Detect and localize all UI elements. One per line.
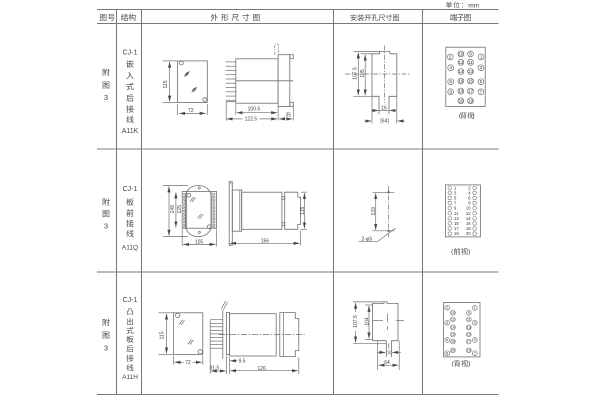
- svg-text:4: 4: [446, 321, 448, 325]
- svg-text:156: 156: [261, 238, 270, 244]
- svg-text:3: 3: [474, 321, 476, 325]
- svg-text:12: 12: [451, 318, 455, 322]
- svg-text:17: 17: [468, 89, 474, 94]
- svg-text:133: 133: [371, 207, 377, 216]
- svg-text:19: 19: [454, 231, 459, 236]
- svg-text:2: 2: [446, 306, 448, 310]
- svg-text:20: 20: [451, 349, 455, 353]
- svg-text:11: 11: [468, 60, 473, 65]
- svg-text:18: 18: [451, 340, 455, 344]
- svg-text:105: 105: [360, 69, 366, 78]
- svg-text:9: 9: [468, 311, 470, 315]
- svg-text:2-φ5: 2-φ5: [361, 236, 372, 242]
- svg-text:13: 13: [467, 326, 471, 330]
- svg-text:16: 16: [381, 105, 387, 111]
- svg-text:15: 15: [467, 333, 471, 337]
- svg-text:72: 72: [188, 108, 194, 114]
- svg-text:8: 8: [446, 351, 448, 355]
- svg-text:20: 20: [458, 98, 464, 103]
- svg-text:): ): [468, 361, 470, 368]
- svg-text:12: 12: [458, 60, 464, 65]
- svg-text:16: 16: [451, 333, 455, 337]
- svg-text:13: 13: [468, 69, 474, 74]
- svg-text:): ): [468, 249, 470, 256]
- svg-text:17: 17: [467, 340, 471, 344]
- svg-text:107.5: 107.5: [353, 315, 359, 328]
- svg-text:7: 7: [474, 351, 476, 355]
- svg-text:3: 3: [104, 222, 108, 231]
- svg-text:11: 11: [467, 318, 471, 322]
- svg-text:100.5: 100.5: [248, 107, 261, 113]
- svg-text:122.5: 122.5: [245, 117, 258, 123]
- svg-text:20: 20: [466, 231, 471, 236]
- svg-text:64: 64: [384, 360, 390, 366]
- svg-text:9.5: 9.5: [239, 359, 246, 365]
- svg-text:31.5: 31.5: [210, 365, 220, 371]
- svg-text:104: 104: [365, 317, 371, 326]
- svg-text:16: 16: [386, 350, 391, 355]
- svg-text:115: 115: [300, 207, 306, 215]
- svg-text:115: 115: [159, 331, 165, 339]
- svg-text:3: 3: [104, 343, 108, 352]
- svg-text:149: 149: [170, 205, 176, 214]
- svg-text:): ): [473, 113, 475, 120]
- svg-text:10: 10: [451, 311, 455, 315]
- svg-text:19: 19: [468, 98, 474, 103]
- svg-text:CJ-1: CJ-1: [123, 297, 138, 304]
- svg-text:5: 5: [474, 338, 476, 342]
- svg-text:107.5: 107.5: [353, 67, 359, 80]
- svg-text:105: 105: [195, 240, 204, 246]
- svg-text:125: 125: [177, 205, 183, 214]
- svg-text:35: 35: [286, 113, 292, 119]
- svg-text:CJ-1: CJ-1: [123, 186, 138, 193]
- svg-text:mm: mm: [468, 2, 479, 9]
- svg-text:[64]: [64]: [380, 119, 389, 125]
- svg-text:126: 126: [258, 366, 267, 372]
- svg-text:6: 6: [446, 338, 448, 342]
- svg-text:72: 72: [185, 360, 191, 366]
- svg-text:15: 15: [468, 79, 474, 84]
- svg-text:1: 1: [474, 306, 476, 310]
- svg-text:A11K: A11K: [122, 128, 139, 135]
- svg-text:A11Q: A11Q: [122, 244, 138, 251]
- svg-text:3: 3: [104, 93, 108, 102]
- svg-text:CJ-1: CJ-1: [123, 50, 138, 57]
- svg-text:A11H: A11H: [122, 374, 138, 381]
- svg-text:18: 18: [458, 89, 464, 94]
- svg-text:10: 10: [458, 52, 464, 57]
- svg-text:16: 16: [458, 79, 464, 84]
- svg-text:19: 19: [467, 349, 471, 353]
- svg-text:14: 14: [458, 69, 464, 74]
- svg-text:14: 14: [451, 326, 455, 330]
- svg-text:115: 115: [163, 80, 169, 88]
